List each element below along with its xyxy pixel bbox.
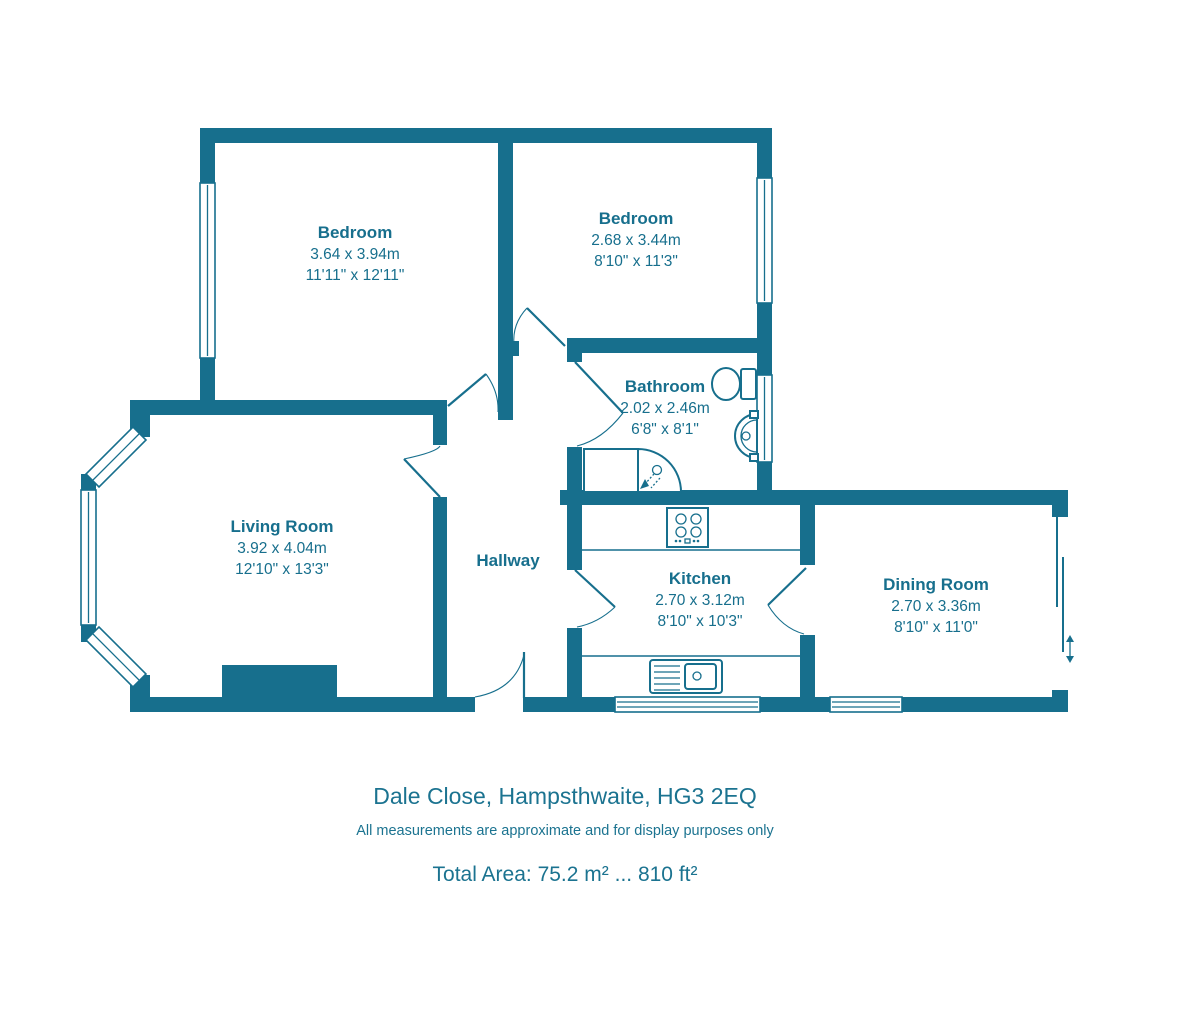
- living-room-door-icon: [404, 446, 440, 497]
- dining-room-name: Dining Room: [883, 575, 989, 594]
- bedroom2-window-icon: [757, 178, 772, 303]
- total-area-line: Total Area: 75.2 m² ... 810 ft²: [0, 863, 1130, 887]
- kitchen-imperial: 8'10" x 10'3": [657, 613, 742, 630]
- hallway-label: Hallway: [476, 551, 540, 570]
- disclaimer-line: All measurements are approximate and for…: [0, 823, 1130, 839]
- hallway-name: Hallway: [476, 551, 540, 570]
- bathroom-name: Bathroom: [625, 377, 705, 396]
- kitchen-label: Kitchen 2.70 x 3.12m 8'10" x 10'3": [655, 569, 745, 630]
- bedroom2-door-icon: [514, 308, 565, 346]
- dining-room-label: Dining Room 2.70 x 3.36m 8'10" x 11'0": [883, 575, 989, 636]
- bedroom1-imperial: 11'11" x 12'11": [306, 267, 405, 284]
- kitchen-name: Kitchen: [669, 569, 731, 588]
- bedroom2-name: Bedroom: [599, 209, 674, 228]
- bay-window-icon: [81, 427, 146, 687]
- room-labels: Bedroom 3.64 x 3.94m 11'11" x 12'11" Bed…: [231, 209, 989, 636]
- bedroom2-metric: 2.68 x 3.44m: [591, 232, 681, 249]
- hob-icon: [667, 508, 708, 547]
- bedroom1-label: Bedroom 3.64 x 3.94m 11'11" x 12'11": [306, 223, 405, 284]
- kitchen-dining-door-icon: [768, 568, 806, 634]
- address-line: Dale Close, Hampsthwaite, HG3 2EQ: [0, 783, 1130, 810]
- bedroom1-name: Bedroom: [318, 223, 393, 242]
- living-room-label: Living Room 3.92 x 4.04m 12'10" x 13'3": [231, 517, 334, 578]
- patio-sliding-door-icon: [1057, 517, 1074, 663]
- kitchen-window-icon: [615, 697, 760, 712]
- bedroom2-label: Bedroom 2.68 x 3.44m 8'10" x 11'3": [591, 209, 681, 270]
- floorplan-drawing: Bedroom 3.64 x 3.94m 11'11" x 12'11" Bed…: [0, 0, 1200, 760]
- footer: Dale Close, Hampsthwaite, HG3 2EQ All me…: [0, 783, 1130, 887]
- kitchen-metric: 2.70 x 3.12m: [655, 592, 745, 609]
- floorplan-page: Bedroom 3.64 x 3.94m 11'11" x 12'11" Bed…: [0, 0, 1200, 1022]
- shower-icon: [584, 449, 681, 492]
- living-room-name: Living Room: [231, 517, 334, 536]
- bedroom2-imperial: 8'10" x 11'3": [594, 253, 678, 270]
- basin-icon: [735, 411, 758, 461]
- living-room-imperial: 12'10" x 13'3": [235, 561, 329, 578]
- bathroom-imperial: 6'8" x 8'1": [631, 421, 699, 438]
- bathroom-label: Bathroom 2.02 x 2.46m 6'8" x 8'1": [620, 377, 710, 438]
- dining-window-icon: [830, 697, 902, 712]
- bathroom-door-icon: [575, 362, 623, 446]
- bathroom-window-icon: [757, 375, 772, 462]
- bedroom1-metric: 3.64 x 3.94m: [310, 246, 400, 263]
- bedroom1-door-icon: [448, 374, 498, 412]
- bedroom1-window-icon: [200, 183, 215, 358]
- chimney-breast: [222, 665, 337, 700]
- dining-room-imperial: 8'10" x 11'0": [894, 619, 978, 636]
- bathroom-metric: 2.02 x 2.46m: [620, 400, 710, 417]
- dining-room-metric: 2.70 x 3.36m: [891, 598, 981, 615]
- kitchen-hall-door-icon: [575, 570, 615, 627]
- front-door-icon: [475, 652, 524, 698]
- toilet-icon: [712, 368, 756, 400]
- windows: [81, 178, 902, 712]
- sink-icon: [650, 660, 722, 693]
- living-room-metric: 3.92 x 4.04m: [237, 540, 327, 557]
